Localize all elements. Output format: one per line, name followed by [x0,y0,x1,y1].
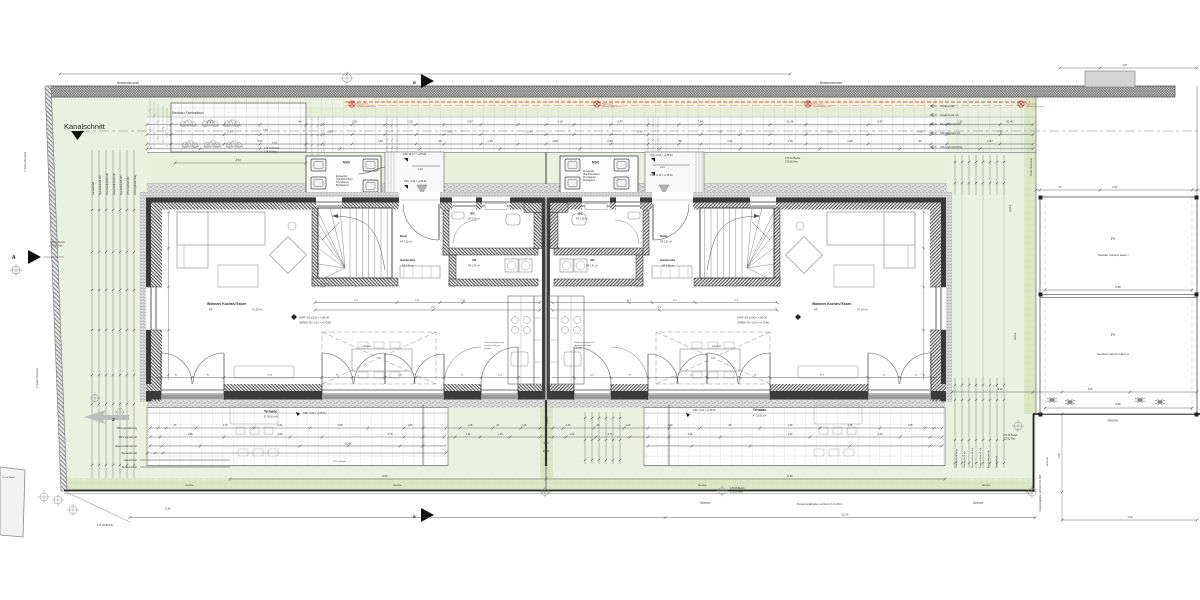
svg-text:Mauerwerksmaß roh: Mauerwerksmaß roh [115,445,138,448]
svg-text:Luftraum: Luftraum [712,345,721,348]
svg-text:WC: WC [578,212,584,216]
svg-text:Vorbehandlung nach: Vorbehandlung nach [484,341,505,344]
svg-text:Entsteplatz: Entsteplatz [336,175,348,178]
svg-text:Mauerwerksmaß roh: Mauerwerksmaß roh [113,172,116,195]
svg-text:1.20: 1.20 [487,139,493,143]
svg-text:1.44: 1.44 [377,139,383,143]
svg-text:NF: NF [209,308,213,312]
svg-text:Quartiersplan ±0 m: Quartiersplan ±0 m [602,105,621,108]
svg-text:Öffnungsmaß fertig: Öffnungsmaß fertig [134,174,137,195]
svg-text:L-Steine Bestand: L-Steine Bestand [35,368,39,388]
svg-text:Breifkapiert): Breifkapiert) [336,184,349,187]
svg-text:Hecke Überstand: Hecke Überstand [1030,158,1033,176]
svg-text:Quartiersplan ±0 m: Quartiersplan ±0 m [357,105,376,108]
svg-text:4.20: 4.20 [1127,515,1133,519]
svg-text:1.01: 1.01 [352,120,358,124]
svg-text:OKRDH S/3 -0.10 = +179.80: OKRDH S/3 -0.10 = +179.80 [737,322,769,325]
svg-text:2.02: 2.02 [544,442,549,445]
svg-text:1.84: 1.84 [408,424,413,427]
svg-text:3.92: 3.92 [788,433,793,436]
svg-text:7.07: 7.07 [717,130,723,134]
svg-text:1.08: 1.08 [552,139,558,143]
svg-text:1.44: 1.44 [418,169,423,171]
svg-text:OKF -0.32 = +178.39: OKF -0.32 = +178.39 [404,180,427,183]
svg-text:2.53: 2.53 [207,120,213,124]
svg-text:7.54: 7.54 [227,130,233,134]
svg-text:Wohnen/ Kochen/ Essen: Wohnen/ Kochen/ Essen [812,302,852,306]
svg-text:Öffnungsmaß roh: Öffnungsmaß roh [127,176,130,195]
svg-text:Bauwerksmaß roh: Bauwerksmaß roh [99,175,102,195]
svg-text:Terrasse: Terrasse [753,408,766,412]
svg-text:Öffnungsmaß roh: Öffnungsmaß roh [940,131,961,135]
svg-text:NF: NF [814,308,818,312]
svg-text:1.32: 1.32 [688,433,693,436]
svg-text:Hecke: Hecke [1008,204,1012,212]
svg-text:Gesamtmaß: Gesamtmaß [124,459,138,462]
svg-text:Öffnungsmaß fertig: Öffnungsmaß fertig [940,145,963,149]
svg-text:Mauerwerksmaß roh: Mauerwerksmaß roh [979,447,982,468]
svg-text:8.08: 8.08 [382,474,388,478]
svg-text:47,29 m²: 47,29 m² [252,308,263,312]
svg-text:OKFF S/3 ±0.00 = +180.30: OKFF S/3 ±0.00 = +180.30 [737,317,768,320]
svg-text:Bauwerksmaß roh: Bauwerksmaß roh [940,122,962,126]
svg-text:Diele: Diele [660,234,668,238]
svg-text:Öffnungsmaß roh: Öffnungsmaß roh [118,436,137,439]
svg-text:Mauerwerksmaß roh: Mauerwerksmaß roh [971,447,974,468]
svg-text:Diele: Diele [400,234,408,238]
svg-text:11.36: 11.36 [787,120,794,124]
svg-text:Bestandsmauer: Bestandsmauer [117,81,140,85]
svg-text:Bauwerksmaß roh: Bauwerksmaß roh [120,175,123,195]
svg-text:NF 2,36 m²: NF 2,36 m² [576,218,588,221]
svg-text:B: B [413,80,416,85]
svg-text:Wohnen/ Kochen/ Essen: Wohnen/ Kochen/ Essen [207,302,247,306]
svg-text:0.41: 0.41 [278,424,283,427]
svg-text:(Stanfborstühlen: (Stanfborstühlen [583,173,601,176]
svg-text:Hecke: Hecke [185,483,194,487]
svg-text:26/18: 26/18 [320,287,326,289]
svg-text:1.20: 1.20 [327,130,333,134]
svg-text:Bestandsmauer: Bestandsmauer [820,81,843,85]
svg-text:2.76: 2.76 [878,433,883,436]
svg-text:36: 36 [438,139,442,143]
svg-text:47: 47 [1058,185,1062,189]
svg-text:NF 2,62 m²: NF 2,62 m² [400,241,412,244]
svg-text:Kanalschnitt: Kanalschnitt [64,122,106,131]
svg-text:1.38: 1.38 [566,424,571,427]
svg-text:2.97: 2.97 [987,139,993,143]
svg-text:1.32: 1.32 [466,433,471,436]
svg-text:Garderobe: Garderobe [660,258,676,262]
svg-text:24.02: 24.02 [543,450,550,453]
svg-text:175.36 Neu: 175.36 Neu [50,245,63,248]
svg-text:9.20: 9.20 [998,388,1003,391]
svg-text:Presspapiert: Presspapiert [583,176,596,179]
svg-text:akustik nicht und: akustik nicht und [574,344,591,347]
svg-text:1.03: 1.03 [447,130,453,134]
svg-text:175.60 Neu: 175.60 Neu [785,161,799,164]
svg-text:2.26: 2.26 [848,424,853,427]
svg-text:1.82: 1.82 [570,433,575,436]
svg-text:1.38: 1.38 [522,424,527,427]
svg-text:Gesamtmaß: Gesamtmaß [940,104,955,108]
svg-text:Grenze: Grenze [1045,456,1049,466]
svg-text:OKF ±0.17 = +179.08: OKF ±0.17 = +179.08 [403,153,427,156]
svg-text:7.07: 7.07 [272,141,278,145]
svg-text:1.87: 1.87 [1123,64,1128,67]
svg-text:7.54: 7.54 [263,128,269,132]
svg-text:Hecke: Hecke [982,483,991,487]
svg-text:2.53: 2.53 [235,158,241,162]
svg-text:Breifkapiert): Breifkapiert) [583,179,596,182]
svg-text:1.30: 1.30 [787,139,793,143]
svg-text:2.76: 2.76 [608,433,613,436]
svg-text:1.44: 1.44 [660,167,665,169]
svg-text:2.97: 2.97 [1112,185,1118,189]
svg-text:1.01: 1.01 [727,139,733,143]
svg-text:Neubau Carport Haus I: Neubau Carport Haus I [1098,253,1129,257]
svg-text:175.60 Neu: 175.60 Neu [264,151,278,154]
svg-text:Grenze: Grenze [700,501,711,505]
svg-text:2.59: 2.59 [338,424,343,427]
svg-text:Doppelstabgitter entfernt h=1,: Doppelstabgitter entfernt h=1,60m [797,502,843,506]
svg-text:2.62: 2.62 [607,139,613,143]
svg-text:Mauerwerksmaß roh: Mauerwerksmaß roh [106,172,109,195]
svg-text:NF 2,36 m²: NF 2,36 m² [468,218,480,221]
svg-text:93: 93 [918,139,922,143]
svg-text:47,20 m²: 47,20 m² [857,308,868,312]
svg-text:OKFF S/3 ±0.00 = +180.30: OKFF S/3 ±0.00 = +180.30 [299,317,330,320]
svg-text:Quartiersplan ±0 m: Quartiersplan ±0 m [1026,105,1045,108]
svg-text:61.41: 61.41 [1007,120,1014,124]
svg-text:P2: P2 [1111,237,1115,241]
svg-text:Müll: Müll [343,161,350,165]
svg-text:NF 2,62 m²: NF 2,62 m² [660,241,672,244]
svg-text:3.00: 3.00 [1057,452,1061,458]
svg-text:Hecke: Hecke [393,483,402,487]
svg-text:175.10 Bezirk: 175.10 Bezirk [333,460,347,463]
svg-text:1.05: 1.05 [626,424,631,427]
svg-text:Garderobe: Garderobe [400,258,416,262]
svg-text:1.28: 1.28 [847,139,853,143]
svg-text:Luftraum: Luftraum [362,345,371,348]
svg-text:1.88: 1.88 [188,433,193,436]
svg-text:Müll: Müll [592,161,599,165]
svg-text:7.54: 7.54 [697,120,703,124]
svg-text:1.76: 1.76 [498,433,503,436]
svg-text:Hecke: Hecke [545,416,549,424]
svg-text:1.38: 1.38 [788,424,793,427]
svg-text:5.98: 5.98 [1115,285,1121,289]
svg-text:1.00: 1.00 [827,130,833,134]
svg-text:7.07: 7.07 [257,139,263,143]
svg-text:11.48: 11.48 [345,443,352,446]
svg-text:Terrassenmaß: Terrassenmaß [122,466,138,469]
svg-text:Vorbehandlung nach: Vorbehandlung nach [574,341,595,344]
svg-text:Bauwerksmaß: Bauwerksmaß [122,452,138,455]
svg-text:1.72: 1.72 [223,424,228,427]
svg-text:Presspapiert: Presspapiert [336,181,349,184]
svg-text:Gesamtmaß: Gesamtmaß [995,455,998,468]
svg-text:2.76: 2.76 [388,433,393,436]
svg-text:1.14: 1.14 [557,120,563,124]
svg-text:(Stanfborstühlen: (Stanfborstühlen [336,178,354,181]
svg-text:Neubau Fahrradbox: Neubau Fahrradbox [172,111,204,115]
svg-text:Öffnungsmaß roh: Öffnungsmaß roh [963,450,966,468]
svg-text:OKF -0.02 = +179.06: OKF -0.02 = +179.06 [303,412,326,415]
svg-text:1.14: 1.14 [637,130,643,134]
svg-text:F: 20,60 m²: F: 20,60 m² [264,415,277,419]
svg-text:Hecke: Hecke [698,483,707,487]
svg-text:1.26: 1.26 [468,424,473,427]
svg-text:6.00: 6.00 [278,433,283,436]
svg-text:2.97: 2.97 [527,130,533,134]
svg-text:88: 88 [678,139,682,143]
svg-text:Hecke: Hecke [1013,332,1017,340]
svg-text:2.97: 2.97 [877,120,883,124]
svg-text:1.24: 1.24 [668,424,673,427]
svg-text:Gesamtmaß: Gesamtmaß [92,181,95,195]
svg-text:170.00 Bezirk: 170.00 Bezirk [2,476,16,479]
svg-text:OKF -0.02 = +179.06: OKF -0.02 = +179.06 [693,409,716,412]
svg-text:Bauwerksmaß roh: Bauwerksmaß roh [987,449,990,468]
svg-text:P2: P2 [1111,333,1115,337]
svg-text:2,34: 2,34 [165,507,171,511]
svg-text:A: A [12,255,16,261]
svg-text:1.20: 1.20 [407,120,413,124]
svg-text:NF 1,41 m²: NF 1,41 m² [468,265,480,268]
svg-text:84: 84 [298,120,302,124]
svg-text:Z: Z [112,417,115,422]
svg-text:Terrasse: Terrasse [264,410,277,414]
svg-text:B: B [413,514,416,519]
svg-text:Grenze: Grenze [973,501,984,505]
svg-text:Öffnungsmaß fertig: Öffnungsmaß fertig [955,449,958,468]
svg-text:OKF -0.02 = +178.84: OKF -0.02 = +178.84 [650,154,673,157]
svg-text:Grenze: Grenze [1108,419,1119,423]
svg-text:Öffnungsmaß fertig: Öffnungsmaß fertig [117,427,138,430]
svg-text:F: 33,65 m²: F: 33,65 m² [753,414,766,418]
svg-text:11.24: 11.24 [842,513,849,517]
svg-text:5.98: 5.98 [1115,402,1121,406]
svg-text:7.54: 7.54 [997,130,1003,134]
svg-text:175.35 Bezirk: 175.35 Bezirk [97,523,114,527]
svg-text:2.87: 2.87 [467,120,473,124]
svg-text:Dm 3/4m: Dm 3/4m [320,284,329,286]
svg-text:nutzbar: nutzbar [484,347,492,350]
svg-text:1.05: 1.05 [917,130,923,134]
svg-text:NF 1,41 m²: NF 1,41 m² [586,265,598,268]
svg-text:Neubau Carport Haus II: Neubau Carport Haus II [1097,352,1129,356]
svg-text:nutzbar: nutzbar [574,347,582,350]
svg-text:L-Steine Bestand: L-Steine Bestand [23,152,27,172]
svg-text:8.36: 8.36 [787,474,793,478]
svg-text:WC: WC [470,212,476,216]
svg-text:OKF -0.32 = +178.39: OKF -0.32 = +178.39 [650,174,673,177]
svg-text:Entsteplatz: Entsteplatz [583,170,595,173]
svg-text:akustik nicht und: akustik nicht und [484,344,501,347]
svg-text:OKRDH S/3 -0.10 = +179.80: OKRDH S/3 -0.10 = +179.80 [299,322,331,325]
svg-text:175.60 Neu: 175.60 Neu [730,491,743,494]
svg-text:2.97: 2.97 [617,120,623,124]
svg-text:Quartiersplan ±0 m: Quartiersplan ±0 m [813,105,832,108]
svg-text:1.05: 1.05 [908,424,913,427]
svg-text:NF 3,96 m²: NF 3,96 m² [662,265,674,268]
svg-text:NF 3,96 m²: NF 3,96 m² [402,265,414,268]
svg-text:3.20: 3.20 [1088,388,1093,391]
svg-text:Gesamtmaß roh: Gesamtmaß roh [940,113,959,117]
svg-text:Doppelstabgitter entfernt h=1,: Doppelstabgitter entfernt h=1,60m [1039,474,1042,512]
